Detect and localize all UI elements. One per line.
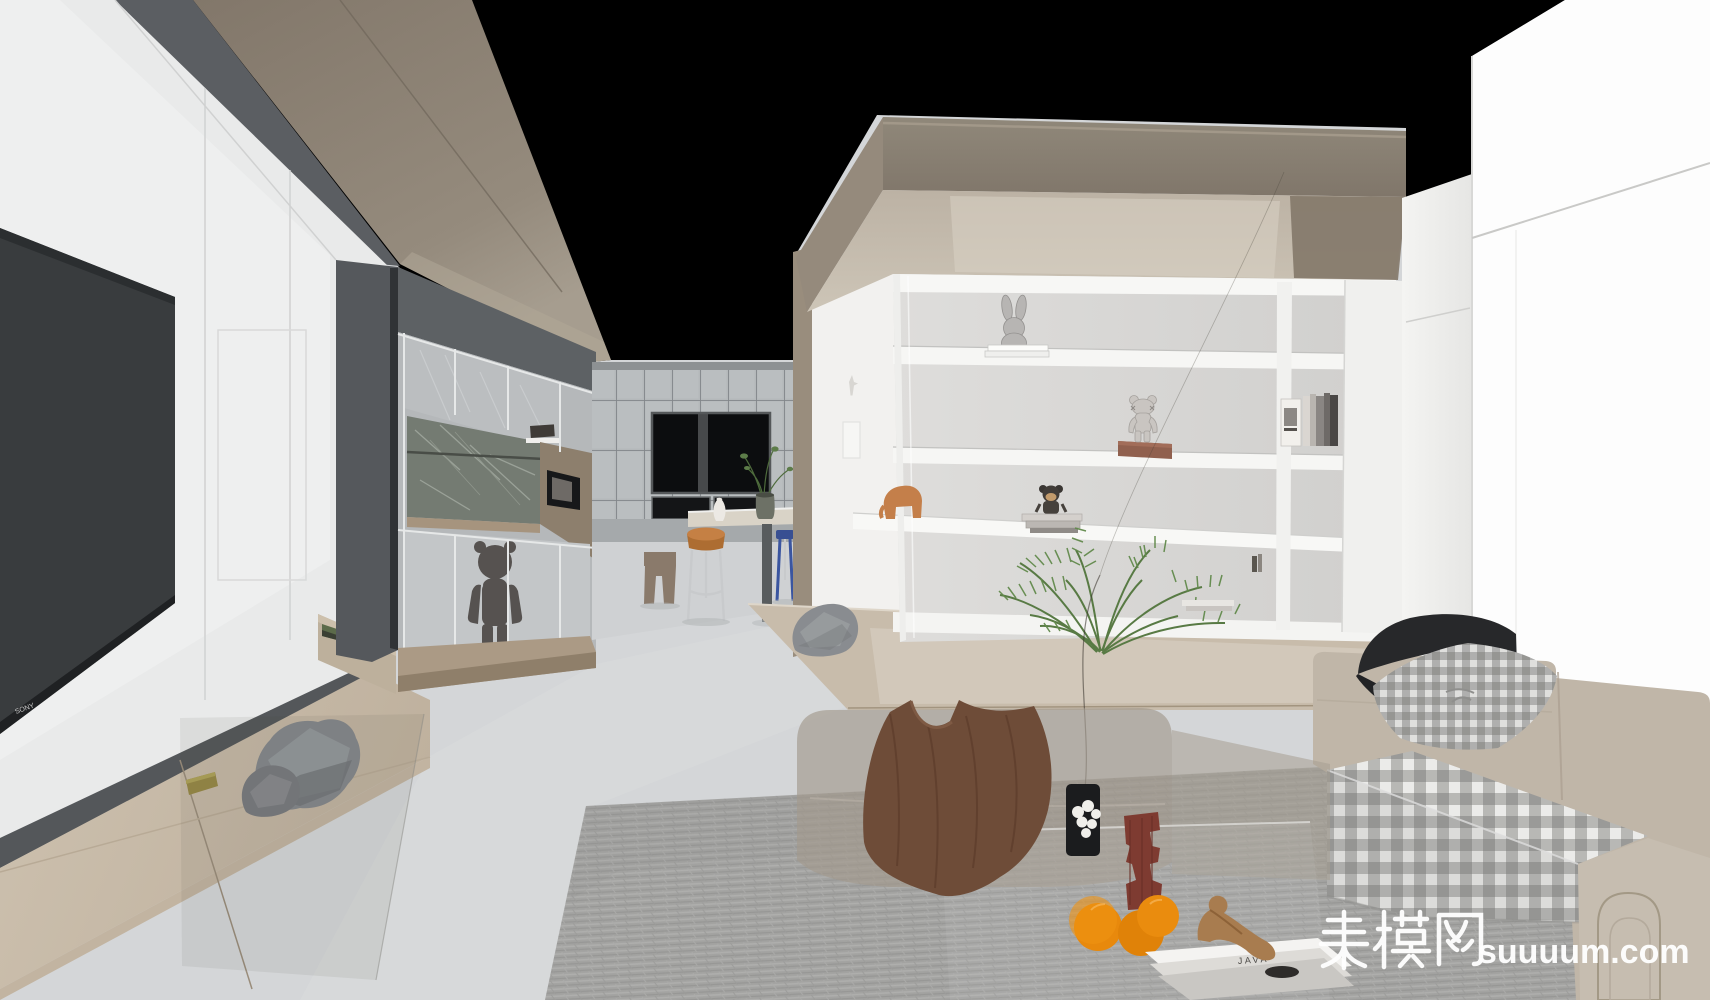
- svg-text:suuuum.com: suuuum.com: [1478, 933, 1690, 971]
